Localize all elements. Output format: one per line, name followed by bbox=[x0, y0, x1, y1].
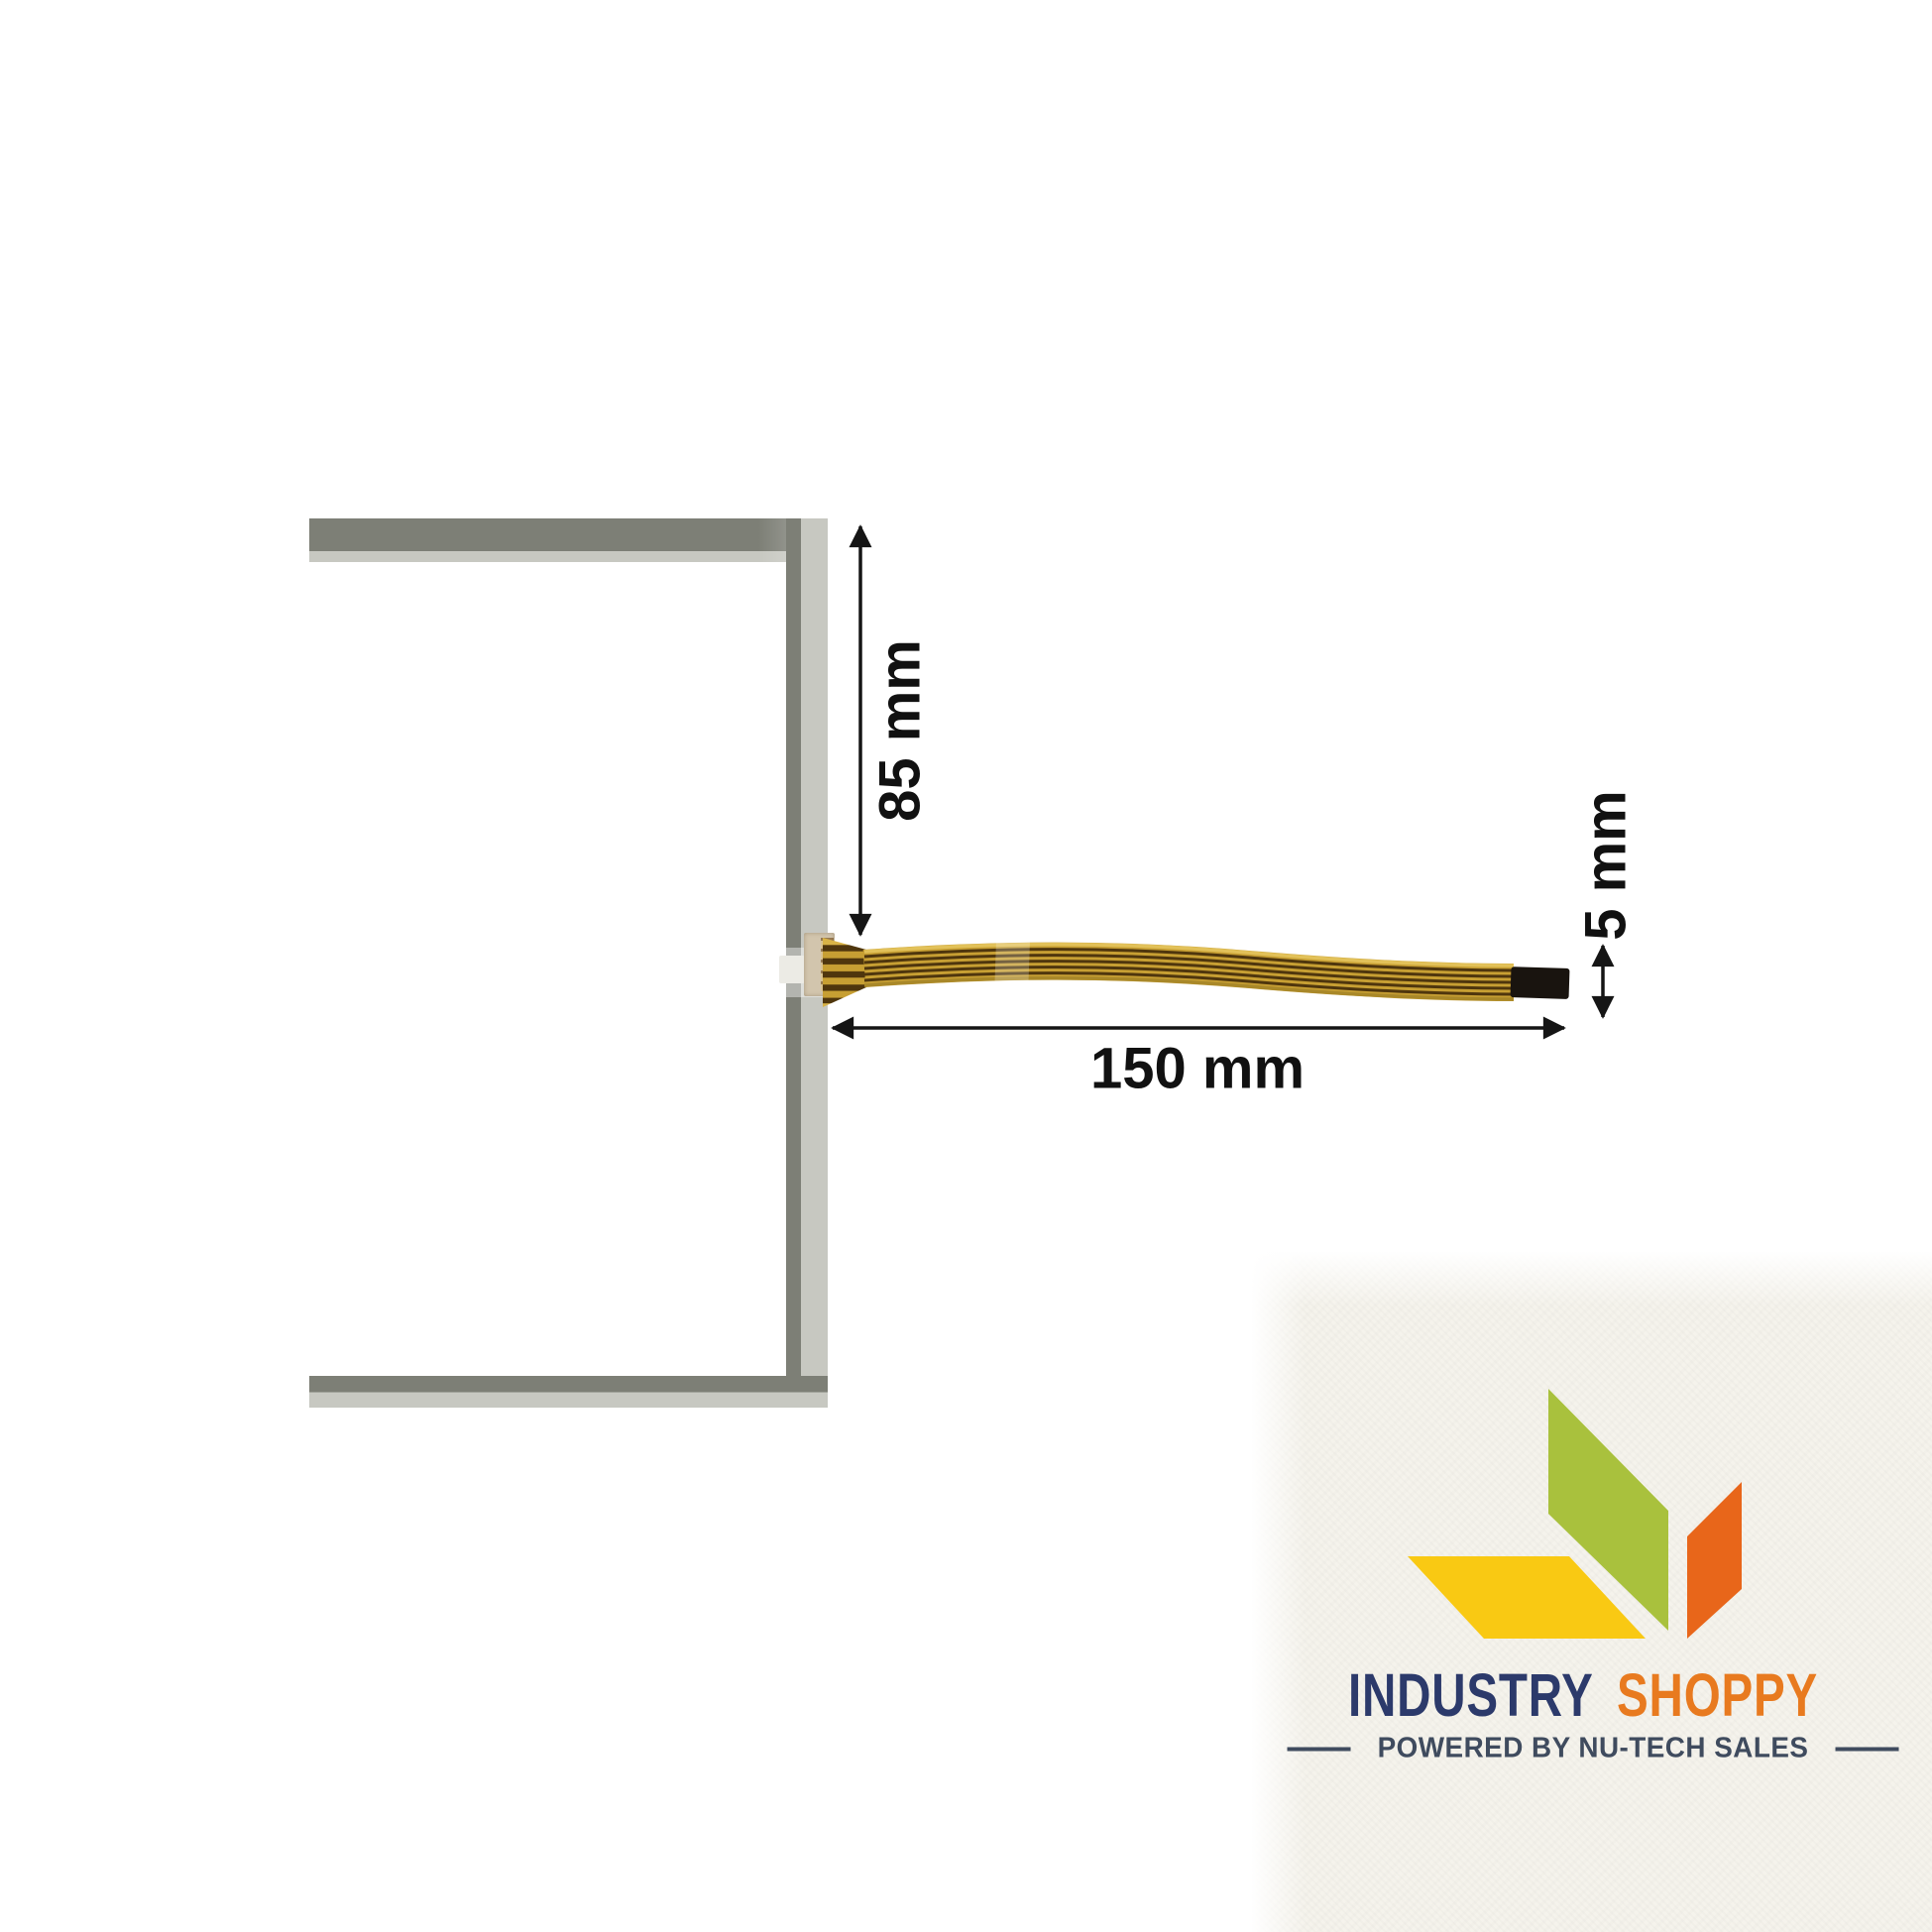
industry-shoppy-wordmark: INDUSTRYSHOPPY bbox=[1348, 1660, 1818, 1730]
brand-word-shoppy: SHOPPY bbox=[1617, 1661, 1818, 1729]
tagline-text: POWERED BY NU-TECH SALES bbox=[1378, 1733, 1809, 1765]
leaf-orange-shape bbox=[1687, 1482, 1742, 1639]
logo-tagline-row: POWERED BY NU-TECH SALES bbox=[1288, 1733, 1899, 1765]
dimension-label-85mm: 85 mm bbox=[867, 639, 934, 822]
tagline-right-rule bbox=[1835, 1747, 1898, 1751]
cable-black-tip bbox=[1511, 966, 1570, 999]
dimension-label-5mm: 5 mm bbox=[1573, 790, 1640, 941]
tagline-left-rule bbox=[1288, 1747, 1351, 1751]
diagram-overlay bbox=[0, 0, 1932, 1932]
flex-ribbon-cable bbox=[823, 938, 1569, 1007]
cable-flare bbox=[823, 938, 866, 1007]
cable-sheen bbox=[994, 941, 1030, 995]
industry-shoppy-logo-glyph bbox=[1408, 1389, 1742, 1639]
brand-word-industry: INDUSTRY bbox=[1348, 1661, 1594, 1729]
dimension-label-150mm: 150 mm bbox=[1090, 1036, 1305, 1102]
